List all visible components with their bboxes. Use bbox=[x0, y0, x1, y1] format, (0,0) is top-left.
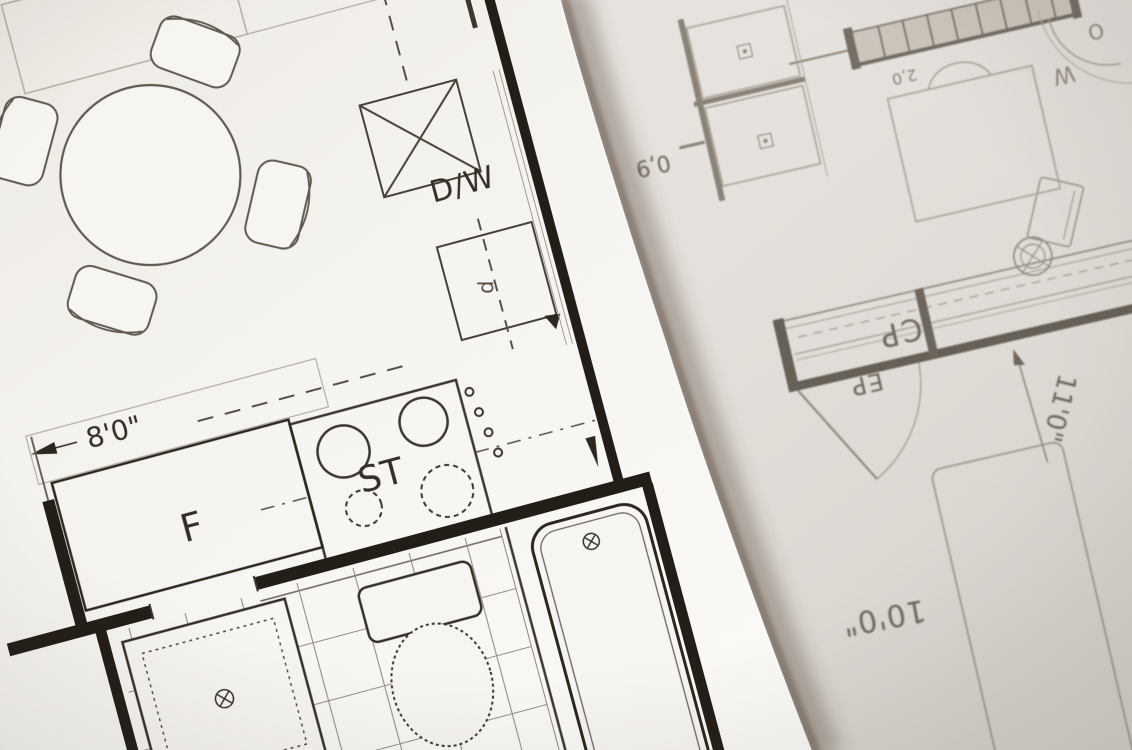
blueprint-photo: CP EP 11'0" 10'0" bbox=[0, 0, 1132, 750]
blueprint-photo-svg: CP EP 11'0" 10'0" bbox=[0, 0, 1132, 750]
vignette-overlay bbox=[0, 0, 1132, 750]
